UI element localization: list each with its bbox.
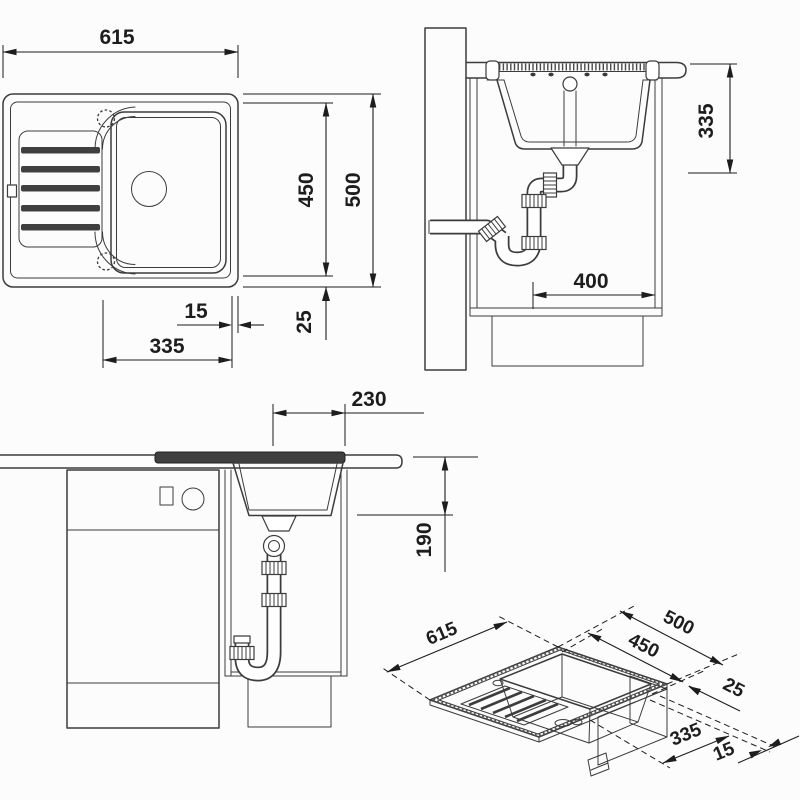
- trap-outlet-cap: [234, 636, 250, 643]
- sink-section: [486, 61, 659, 149]
- tap-hole-platforms: [95, 107, 135, 274]
- dimension-bowl-depth-190: 190: [357, 457, 478, 572]
- dimension-iso-width-615: 615: [387, 618, 507, 672]
- dimension-bowl-span-335: 335: [103, 300, 232, 368]
- dimension-bottom-rim-25: 25: [293, 287, 330, 340]
- plinth: [248, 676, 331, 727]
- dimension-width-615: 615: [3, 26, 238, 78]
- drainboard-rib: [21, 224, 100, 231]
- dimension-right-rim-15: 15: [177, 296, 264, 368]
- drainboard-rib: [21, 205, 100, 212]
- drain-circle: [132, 172, 167, 207]
- bowl-front: [233, 463, 343, 516]
- rim-inner: [439, 650, 659, 734]
- drainboard-rib: [21, 185, 100, 192]
- drainboard-rib: [21, 166, 100, 173]
- dim-label: 500: [342, 172, 365, 207]
- pipe-coupling: [262, 562, 286, 575]
- dim-label: 615: [99, 26, 134, 49]
- drain-funnel: [551, 148, 589, 165]
- pipe-coupling: [230, 647, 254, 660]
- dim-label: 190: [413, 522, 436, 557]
- technical-drawing-canvas: 615 450 500 25 15 335: [0, 0, 800, 800]
- under-bowl-box: [598, 689, 667, 765]
- drain-flange: [262, 516, 296, 531]
- plinth: [492, 316, 643, 366]
- dim-label: 25: [719, 674, 748, 703]
- control-knob: [182, 488, 204, 510]
- control-button: [160, 487, 173, 505]
- dim-label: 25: [293, 310, 316, 334]
- pipe-coupling: [262, 594, 286, 607]
- dim-label: 15: [184, 300, 208, 323]
- ball-joint: [264, 536, 285, 557]
- drainboard: [19, 131, 102, 247]
- dishwasher: [67, 470, 219, 728]
- pipe-coupling: [522, 195, 546, 208]
- overflow-notch: [8, 185, 17, 197]
- rim-knurl-texture: [433, 649, 663, 736]
- dimension-usable-depth-450: 450: [243, 103, 333, 276]
- dimension-trap-offset-230: 230: [273, 388, 424, 446]
- dimension-iso-usable-depth-450: 450: [588, 630, 683, 682]
- front-view: 230 190: [0, 388, 478, 728]
- pipe-coupling: [522, 237, 546, 250]
- bowl: [111, 112, 226, 273]
- dim-label: 615: [423, 618, 461, 650]
- drain-trap-front: [230, 516, 296, 674]
- iso-sink-body: [430, 647, 667, 776]
- wall: [425, 28, 466, 370]
- top-view: 615 450 500 25 15 335: [3, 26, 381, 368]
- dim-label: 400: [573, 270, 608, 293]
- sink-rim-front: [155, 452, 345, 463]
- dimension-depth-below-worktop-335: 335: [688, 64, 737, 173]
- drain-trap: [429, 148, 589, 259]
- dim-label: 335: [667, 719, 705, 751]
- dimension-iso-rim-25: 25: [688, 674, 748, 711]
- drainboard-rib: [21, 147, 100, 154]
- dim-label: 335: [695, 103, 718, 138]
- dimension-trap-clearance-400: 400: [533, 270, 655, 309]
- side-section-view: 335 400: [425, 28, 737, 370]
- dim-label: 450: [625, 630, 663, 663]
- isometric-view: 615 500 450 25 335 15: [381, 605, 799, 776]
- drawing-page: 615 450 500 25 15 335: [0, 0, 800, 800]
- pipe-coupling: [544, 173, 557, 197]
- overflow-pipe: [563, 77, 577, 146]
- dim-label: 230: [351, 388, 386, 411]
- dim-label: 335: [149, 335, 184, 358]
- dimension-iso-right-rim-15: 15: [710, 736, 799, 766]
- dim-label: 450: [295, 172, 318, 207]
